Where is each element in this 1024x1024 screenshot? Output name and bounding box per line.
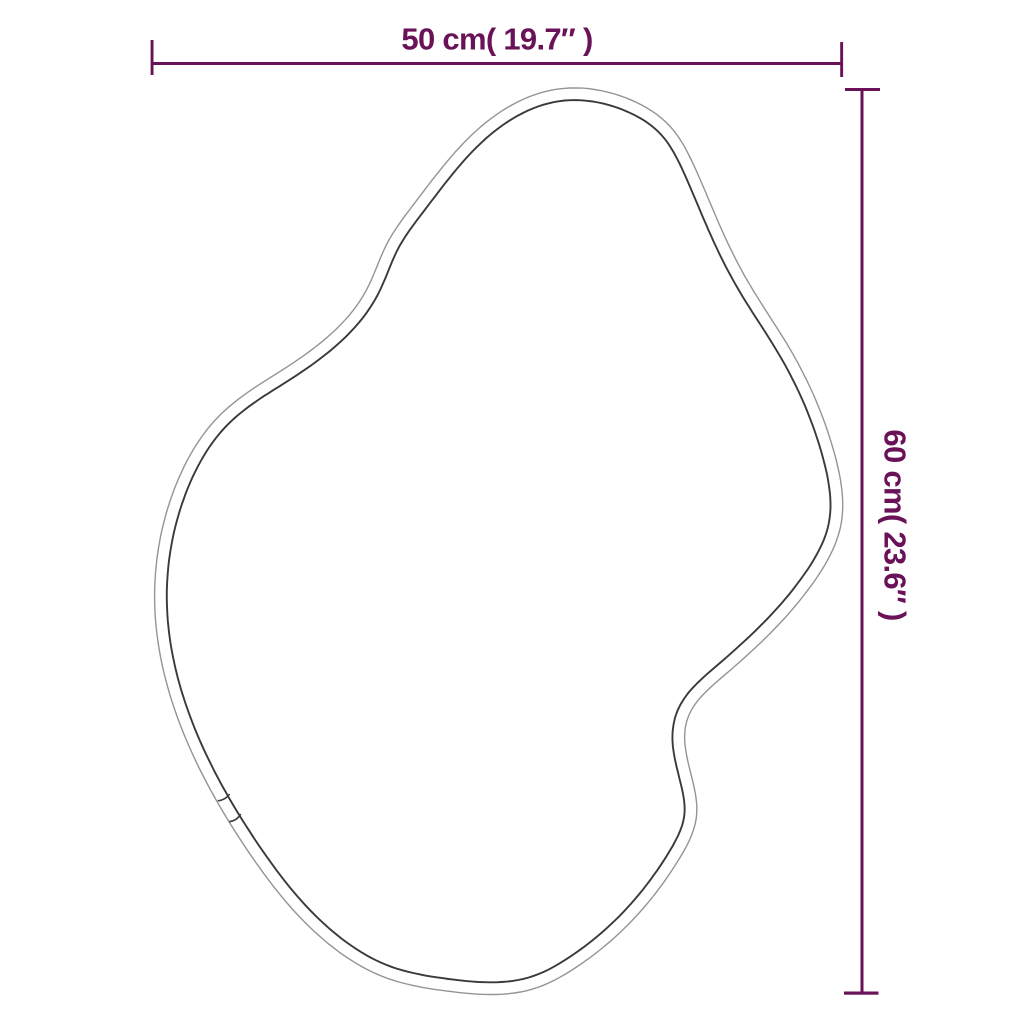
svg-text:50 cm( 19.7″ ): 50 cm( 19.7″ ) bbox=[401, 22, 592, 57]
svg-text:60 cm( 23.6″ ): 60 cm( 23.6″ ) bbox=[878, 429, 913, 620]
